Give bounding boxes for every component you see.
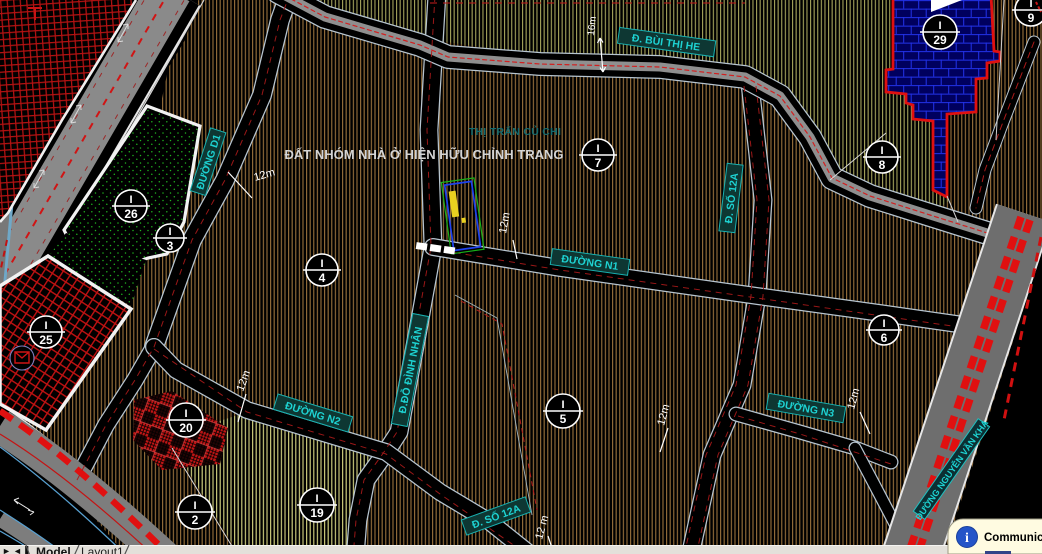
svg-text:ĐẤT NHÓM NHÀ Ở HIỆN HỮU CHỈNH: ĐẤT NHÓM NHÀ Ở HIỆN HỮU CHỈNH TRANG: [285, 147, 564, 162]
svg-text:►: ►: [2, 546, 11, 554]
svg-text:I: I: [938, 20, 941, 32]
svg-text:I: I: [193, 500, 196, 512]
svg-text:4: 4: [319, 271, 326, 285]
svg-text:I: I: [596, 143, 599, 155]
svg-text:29: 29: [933, 33, 947, 47]
svg-text:Model: Model: [36, 545, 71, 554]
svg-text:I: I: [882, 318, 885, 330]
svg-text:I: I: [44, 320, 47, 332]
svg-text:i: i: [965, 531, 969, 546]
svg-text:THỊ TRẤN CỦ CHI: THỊ TRẤN CỦ CHI: [469, 125, 562, 138]
svg-text:16m: 16m: [586, 16, 599, 36]
svg-text:26: 26: [124, 207, 138, 221]
svg-text:25: 25: [39, 333, 53, 347]
svg-text:20: 20: [179, 421, 193, 435]
svg-text:7: 7: [595, 156, 602, 170]
svg-text:I: I: [184, 408, 187, 420]
svg-text:Communic: Communic: [984, 532, 1042, 544]
svg-text:I: I: [315, 493, 318, 505]
svg-text:5: 5: [560, 412, 567, 426]
svg-text:19: 19: [310, 506, 324, 520]
svg-text:Layout1: Layout1: [81, 545, 124, 554]
svg-text:I: I: [880, 145, 883, 157]
svg-text:I: I: [320, 258, 323, 270]
svg-text:I: I: [129, 194, 132, 206]
svg-text:I: I: [1029, 0, 1032, 10]
svg-text:6: 6: [881, 331, 888, 345]
svg-text:I: I: [168, 226, 171, 238]
svg-text:I: I: [561, 399, 564, 411]
svg-text:9: 9: [1028, 11, 1035, 25]
svg-text:8: 8: [879, 158, 886, 172]
svg-text:3: 3: [167, 239, 174, 253]
svg-text:2: 2: [192, 513, 199, 527]
